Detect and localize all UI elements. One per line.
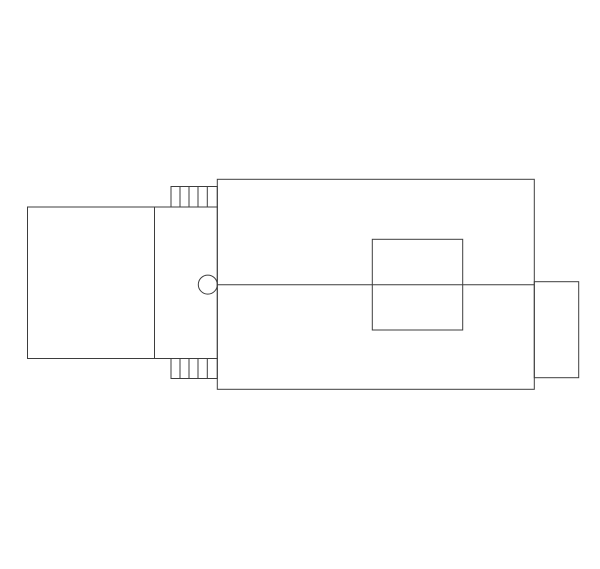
drawing-canvas xyxy=(0,0,600,569)
bottom-rib-block-outline xyxy=(171,359,217,379)
coupler-body-outline xyxy=(155,207,218,359)
technical-drawing xyxy=(0,0,600,569)
top-rib-block-outline xyxy=(171,187,217,208)
left-body-outline xyxy=(28,207,155,359)
knob-circle xyxy=(198,275,217,294)
right-boss-outline xyxy=(534,282,578,378)
